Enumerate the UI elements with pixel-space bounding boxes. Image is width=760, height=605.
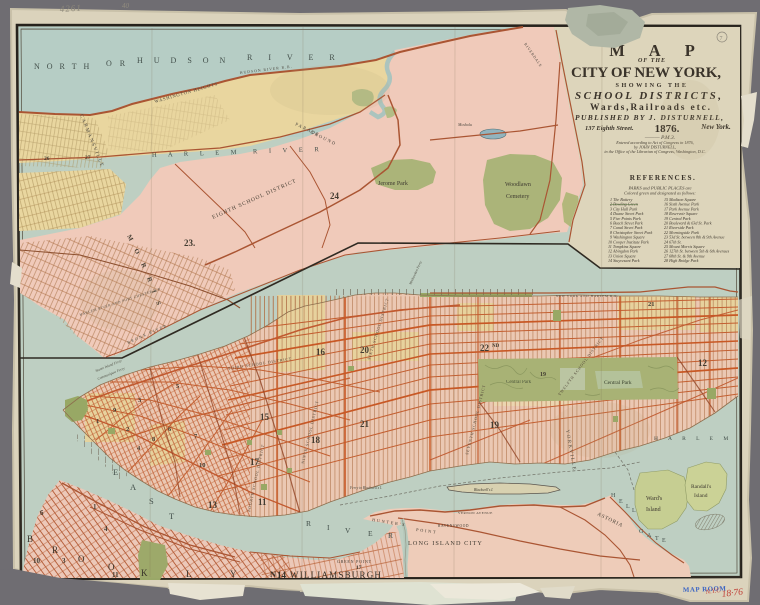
svg-text:7: 7: [720, 36, 723, 42]
svg-text:4261: 4261: [59, 2, 82, 14]
svg-text:40: 40: [122, 2, 130, 10]
